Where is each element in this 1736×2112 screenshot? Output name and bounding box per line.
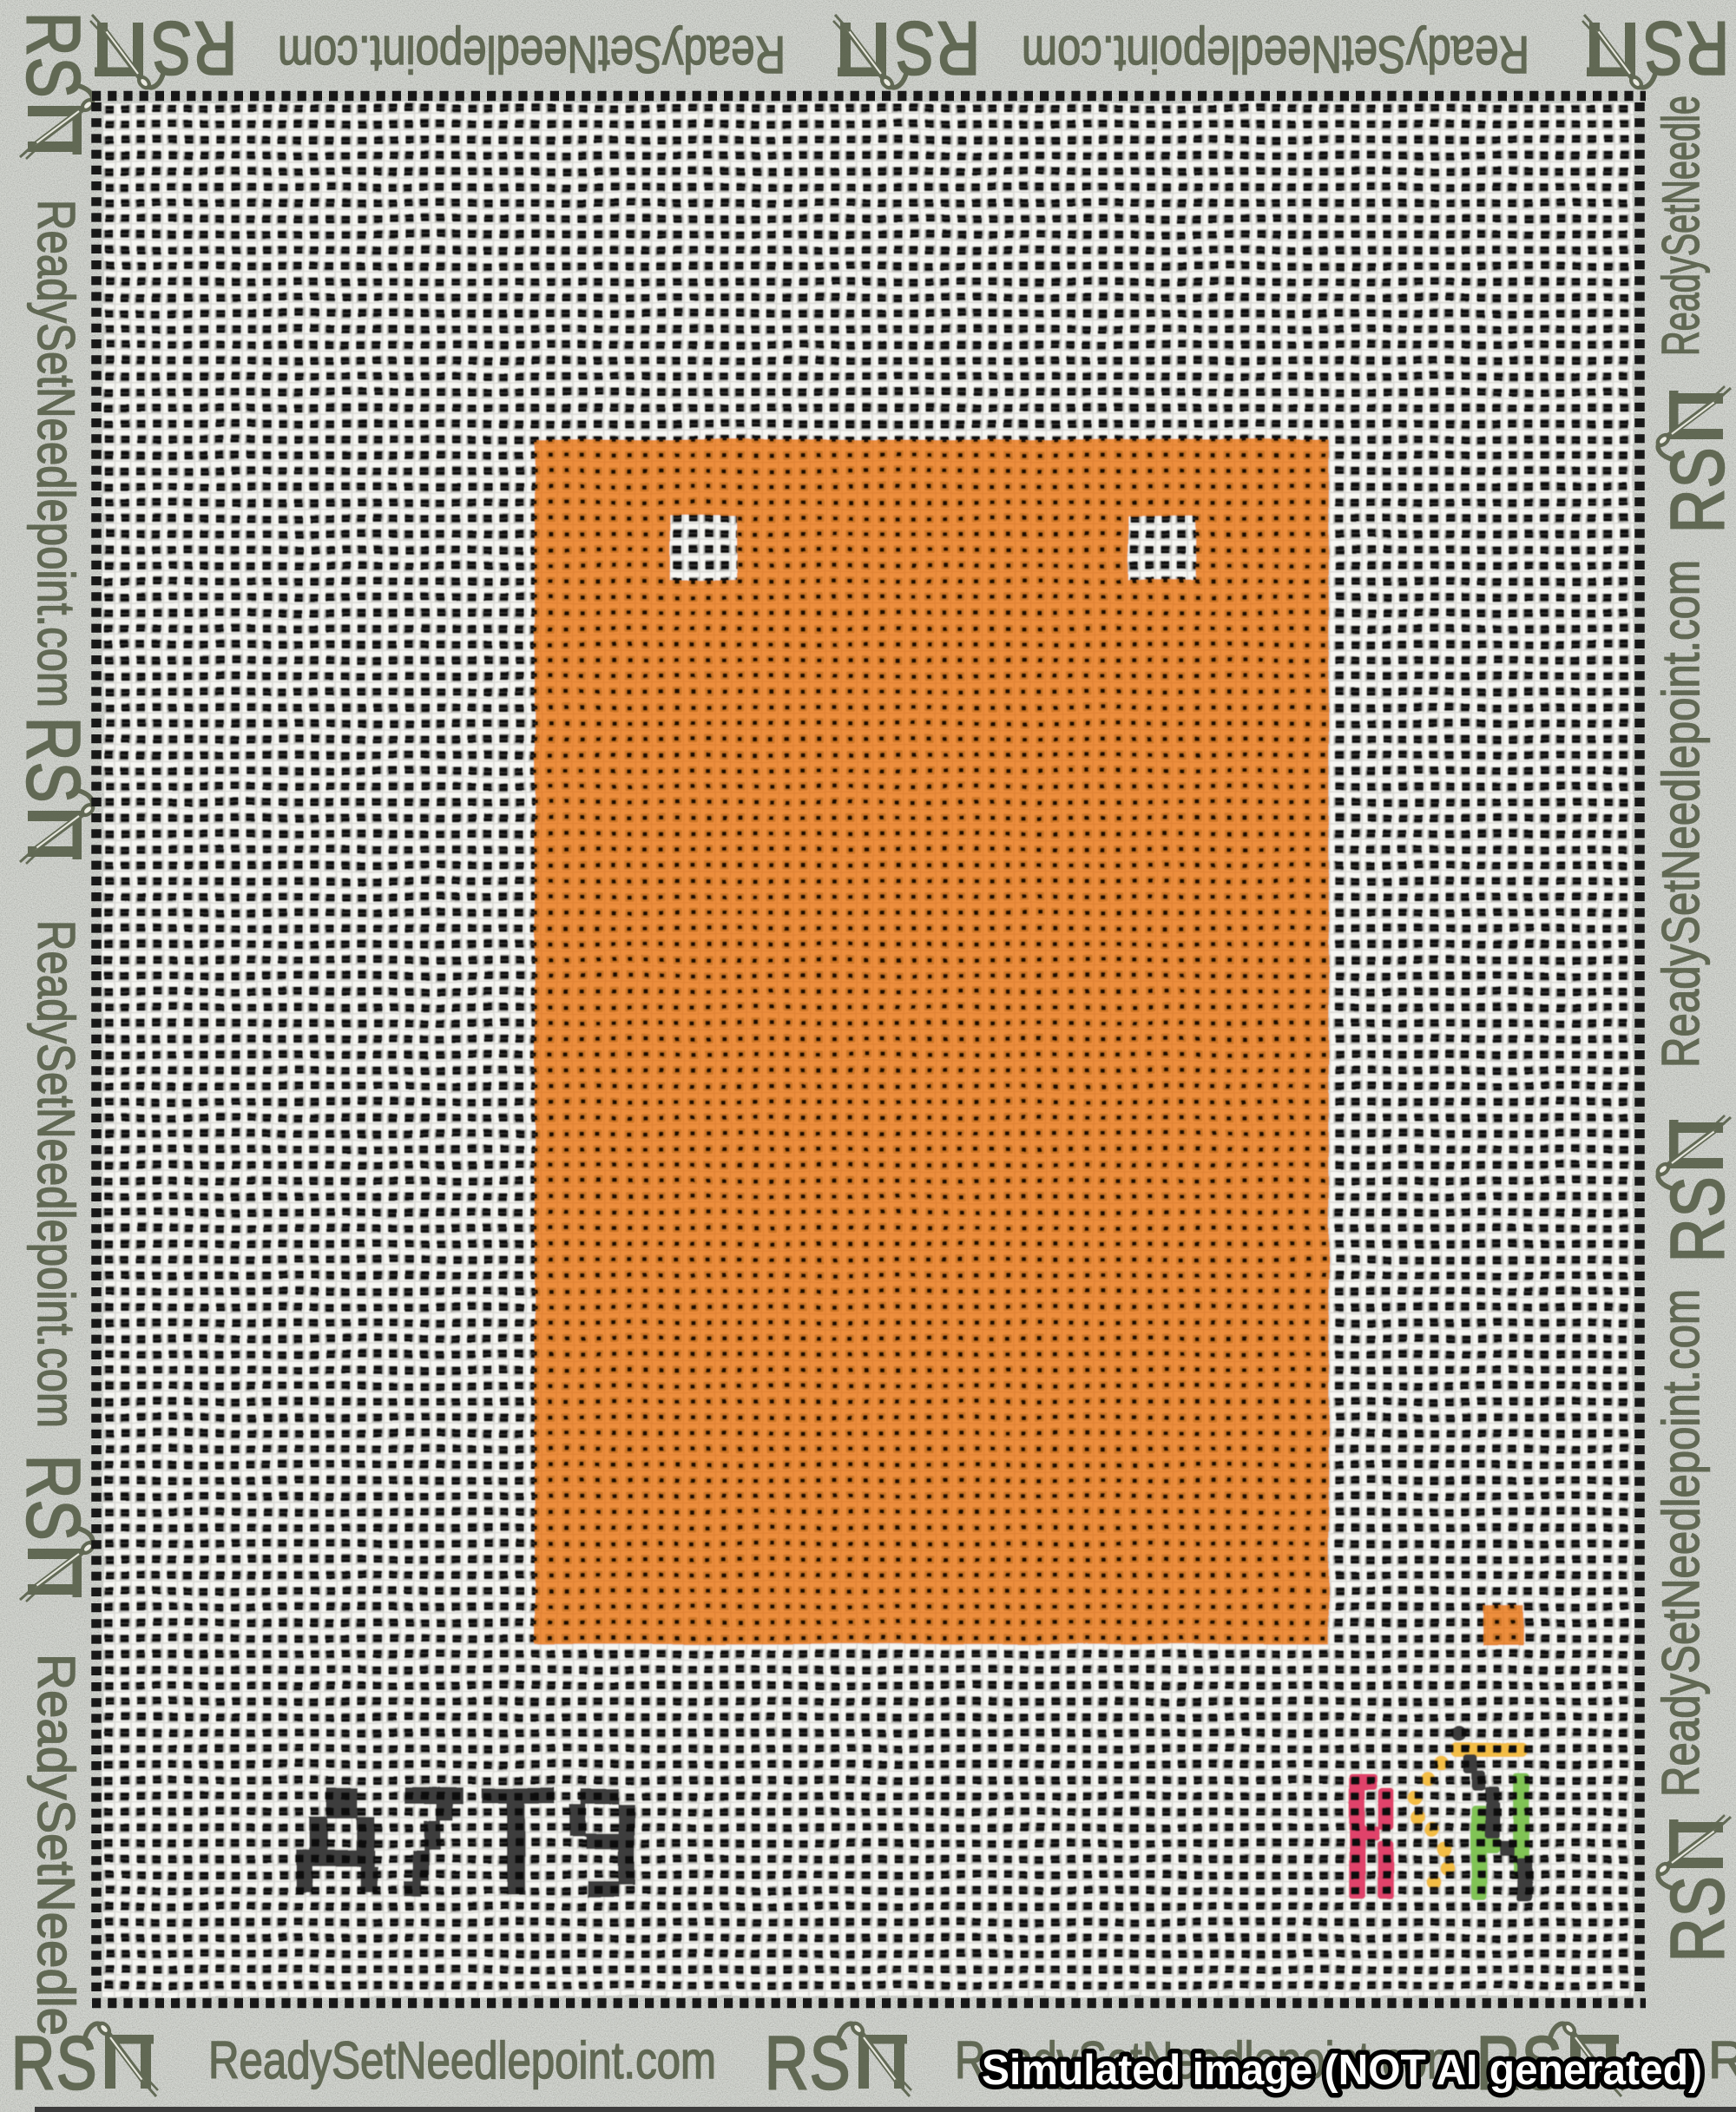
- svg-text:ReadySetNeedlepoint.com: ReadySetNeedlepoint.com: [278, 25, 786, 83]
- svg-text:Simulated image (NOT AI genera: Simulated image (NOT AI generated): [982, 2047, 1702, 2094]
- svg-text:ReadySetNeedle: ReadySetNeedle: [1652, 95, 1710, 356]
- svg-text:Re: Re: [1708, 2031, 1736, 2089]
- svg-text:ReadySetNeedlepoint.com: ReadySetNeedlepoint.com: [27, 920, 85, 1428]
- svg-text:ReadySetNeedlepoint.com: ReadySetNeedlepoint.com: [1022, 25, 1529, 83]
- svg-text:ReadySetNeedlepoint.com: ReadySetNeedlepoint.com: [1652, 560, 1710, 1068]
- svg-text:ReadySetNeedlepoint.com: ReadySetNeedlepoint.com: [1652, 1289, 1710, 1797]
- svg-text:ReadySetNeedlepoint.com: ReadySetNeedlepoint.com: [27, 200, 85, 707]
- svg-text:ReadySetNeedlepoint.com: ReadySetNeedlepoint.com: [208, 2031, 716, 2089]
- svg-text:ReadySetNeedle: ReadySetNeedle: [27, 1654, 85, 2036]
